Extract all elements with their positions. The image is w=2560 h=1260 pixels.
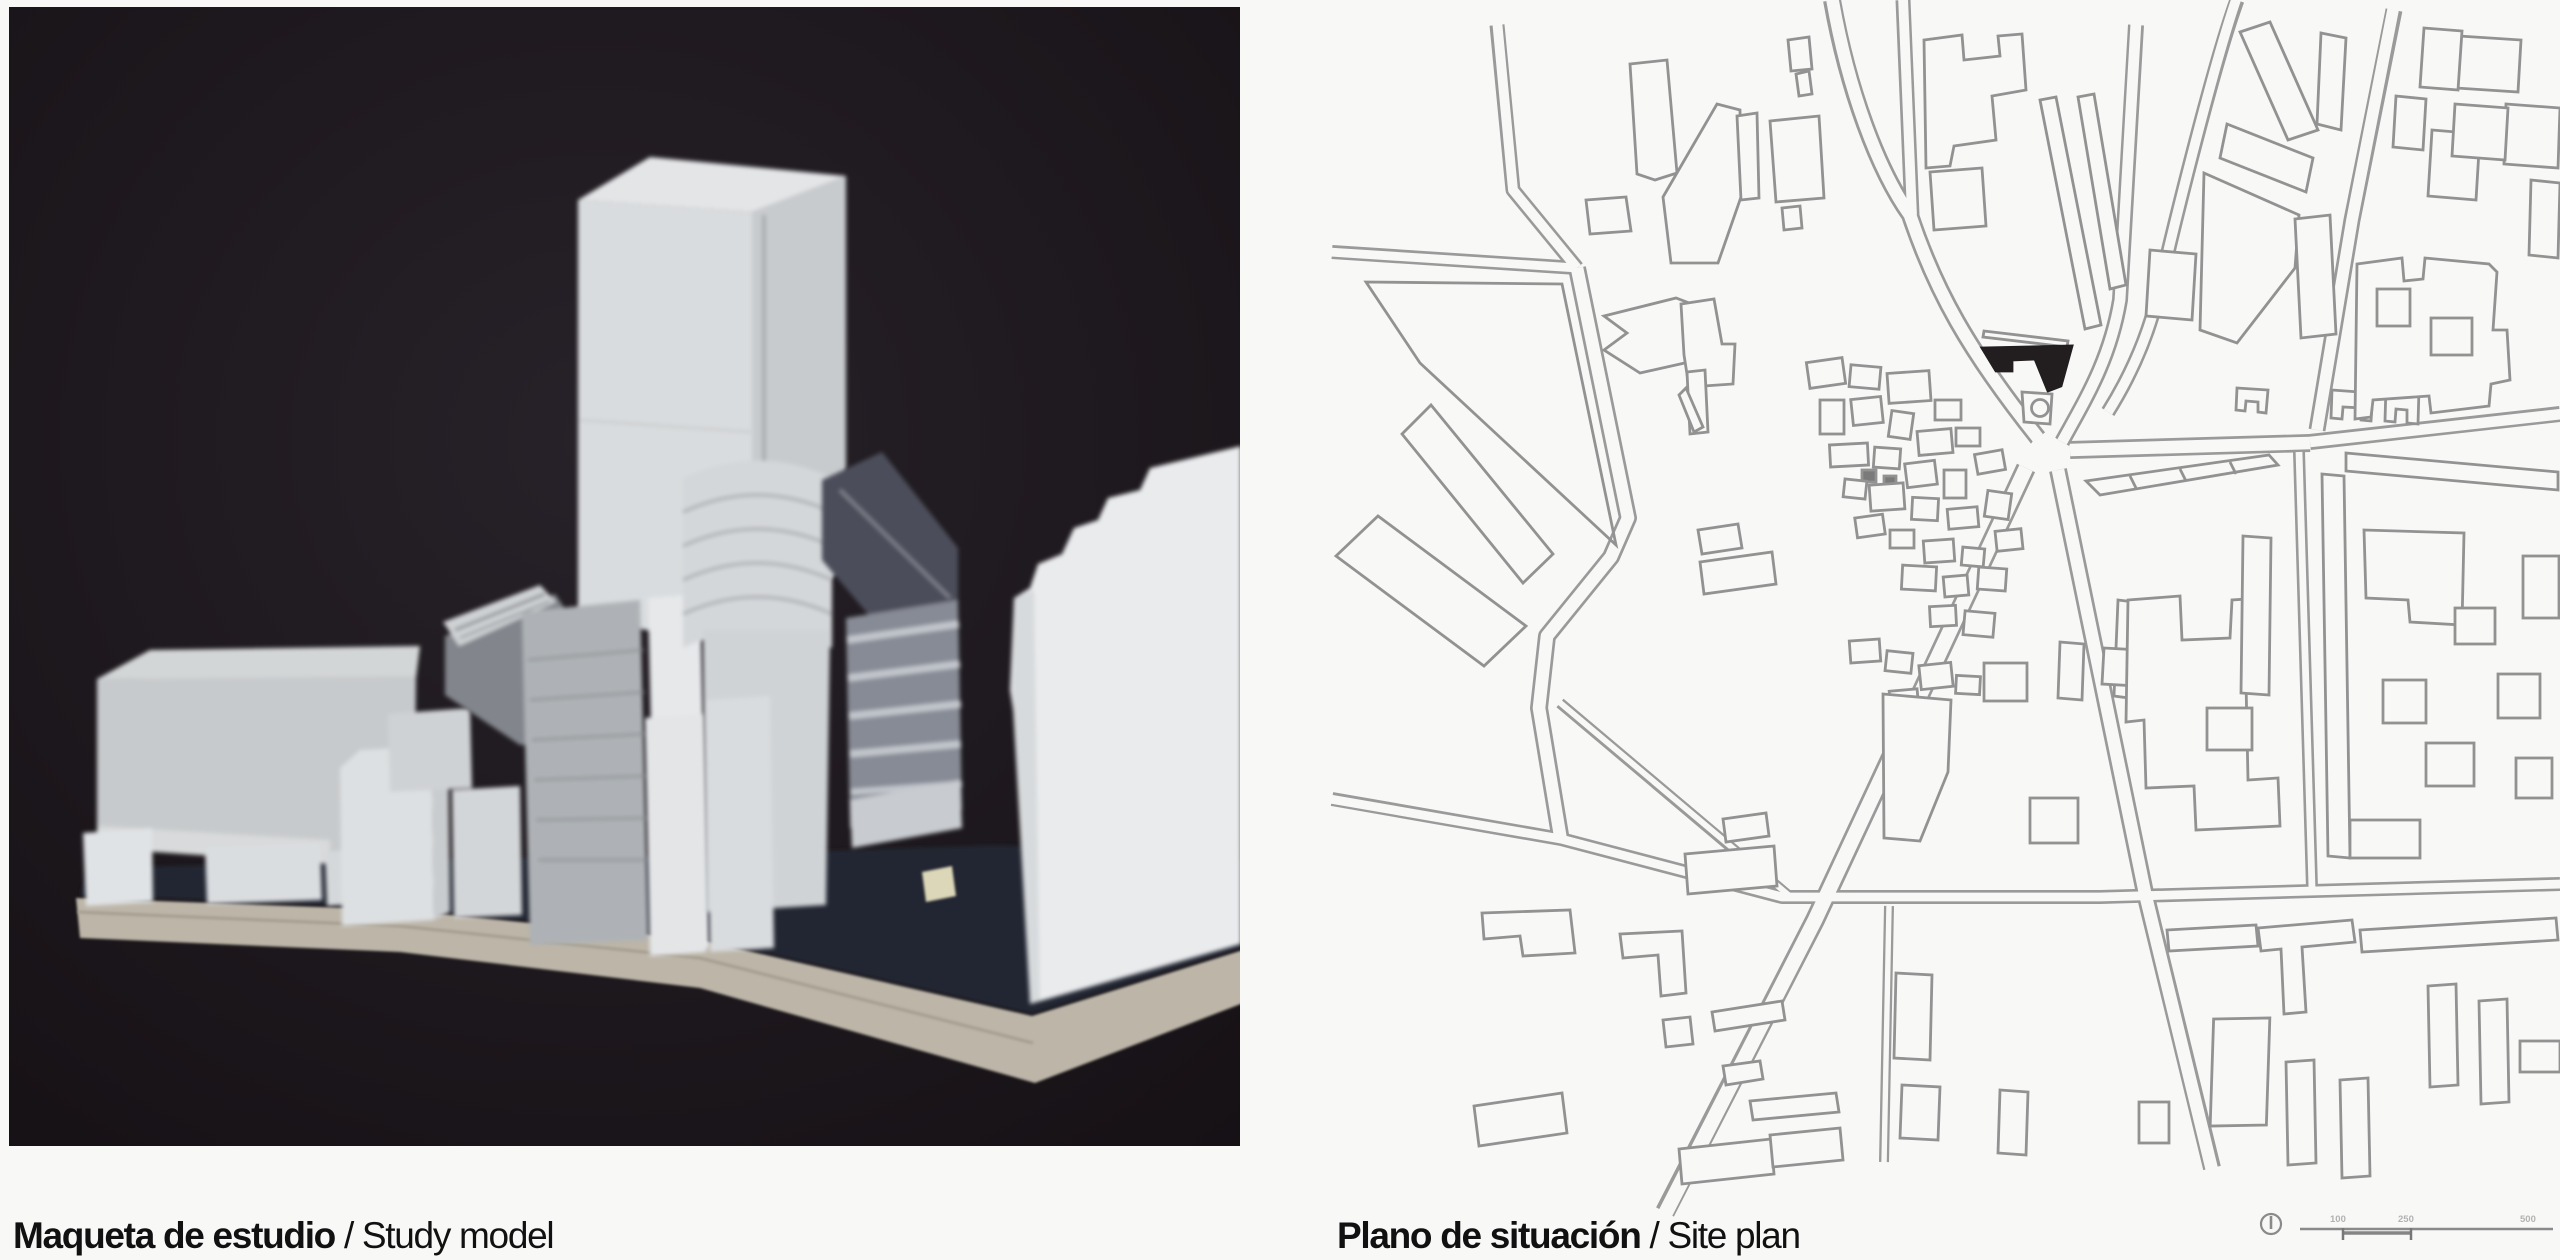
svg-text:500: 500 (2520, 1214, 2536, 1225)
svg-text:100: 100 (2330, 1214, 2346, 1225)
svg-text:Maqueta de estudio / Study mod: Maqueta de estudio / Study model (13, 1215, 553, 1256)
svg-text:250: 250 (2398, 1214, 2414, 1225)
svg-text:Plano de situación / Site plan: Plano de situación / Site plan (1337, 1215, 1800, 1256)
